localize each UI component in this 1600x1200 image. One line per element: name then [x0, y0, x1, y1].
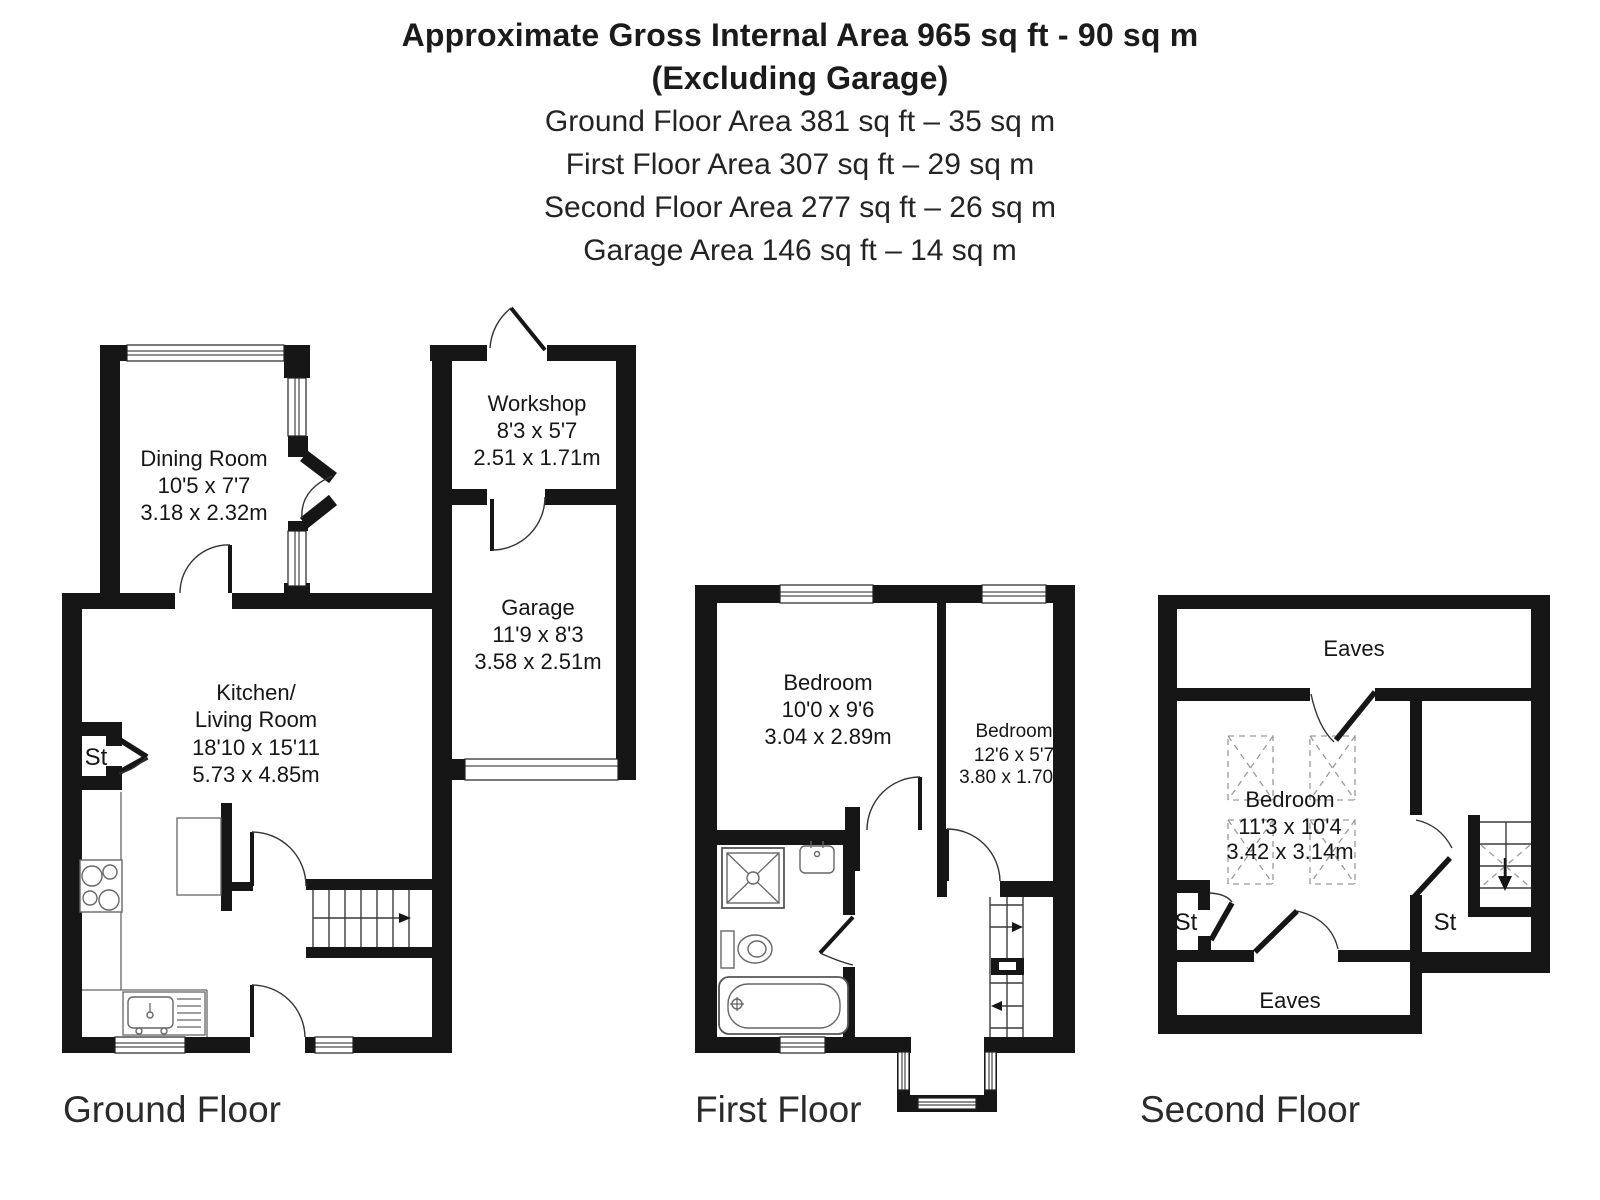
room-label-bedroom1: Bedroom — [783, 670, 872, 695]
room-dims-ft-dining: 10'5 x 7'7 — [158, 473, 251, 498]
floorplan-page: Approximate Gross Internal Area 965 sq f… — [0, 0, 1600, 1200]
eaves-top-door — [1311, 692, 1375, 742]
floor-title-ground: Ground Floor — [63, 1089, 281, 1130]
bathroom-window — [780, 1037, 825, 1053]
dining-side-window-1 — [288, 378, 306, 436]
room-dims-m-second-bedroom: 3.42 x 3.14m — [1226, 839, 1353, 864]
entrance-splay-wall-upper — [304, 456, 333, 478]
bay-window-left-pane — [898, 1052, 909, 1090]
bay-window-right-pane — [985, 1052, 996, 1090]
bedroom1-window — [780, 585, 873, 603]
room-label-workshop: Workshop — [488, 391, 587, 416]
back-door — [252, 985, 305, 1037]
room-dims-m-bedroom1: 3.04 x 2.89m — [764, 724, 891, 749]
stair-down-arrow — [991, 1001, 1002, 1011]
floor-title-second: Second Floor — [1140, 1089, 1360, 1130]
kitchen-sink-icon — [123, 992, 205, 1035]
room-dims-ft-kitchen: 18'10 x 15'11 — [192, 735, 320, 760]
room-dims-m-garage: 3.58 x 2.51m — [474, 649, 601, 674]
ground-floor-plan: Dining Room 10'5 x 7'7 3.18 x 2.32m Work… — [62, 308, 636, 1130]
room-dims-ft-garage: 11'9 x 8'3 — [492, 622, 583, 647]
room-label-store-left: St — [1175, 909, 1198, 936]
room-label-eaves-bottom: Eaves — [1259, 988, 1320, 1013]
room-dims-m-dining: 3.18 x 2.32m — [140, 500, 267, 525]
room-dims-ft-bedroom1: 10'0 x 9'6 — [782, 697, 875, 722]
bedroom1-door — [867, 777, 920, 830]
stair-down-arrow — [1498, 876, 1512, 891]
room-dims-m-workshop: 2.51 x 1.71m — [473, 445, 600, 470]
dining-side-window-2 — [288, 531, 306, 586]
second-bedroom-door — [1414, 820, 1452, 897]
eaves-bottom-door — [1255, 911, 1338, 952]
bay-opening — [911, 1037, 984, 1053]
room-dims-m-kitchen: 5.73 x 4.85m — [192, 762, 319, 787]
bathtub-icon — [719, 977, 848, 1034]
floor-title-first: First Floor — [695, 1089, 862, 1130]
room-dims-ft-bedroom2: 12'6 x 5'7 — [974, 745, 1054, 766]
bathroom-door — [820, 917, 853, 965]
dining-kitchen-door — [180, 545, 230, 593]
second-store-left-door — [1210, 893, 1232, 940]
room-label-dining: Dining Room — [140, 446, 267, 471]
ground-store-door — [119, 740, 147, 773]
workshop-external-door — [490, 308, 545, 350]
toilet-icon — [721, 931, 772, 968]
back-door-gap — [250, 1037, 305, 1053]
room-dims-ft-workshop: 8'3 x 5'7 — [497, 418, 578, 443]
room-label-ground-store: St — [85, 744, 108, 771]
kitchen-bottom-window-2 — [315, 1037, 353, 1053]
second-floor-plan: Eaves Bedroom 11'3 x 10'4 3.42 x 3.14m S… — [1140, 595, 1550, 1130]
room-label-store-right: St — [1434, 909, 1457, 936]
floor-plan-canvas: Dining Room 10'5 x 7'7 3.18 x 2.32m Work… — [0, 0, 1600, 1200]
bay-window-front-pane — [918, 1098, 976, 1109]
sink-icon — [800, 841, 834, 873]
hob-icon — [80, 860, 122, 912]
first-floor-plan: Bedroom 10'0 x 9'6 3.04 x 2.89m Bedroom … — [695, 585, 1075, 1130]
bedroom2-window — [982, 585, 1046, 603]
dining-top-window — [127, 345, 284, 361]
shower-icon — [722, 848, 784, 908]
room-dims-m-bedroom2: 3.80 x 1.70m — [959, 767, 1069, 788]
room-dims-ft-second-bedroom: 11'3 x 10'4 — [1238, 814, 1341, 839]
room-label-bedroom2: Bedroom — [975, 721, 1052, 742]
workshop-garage-door — [492, 497, 545, 551]
room-label-kitchen-1: Kitchen/ — [216, 680, 296, 705]
garage-door-opening — [465, 759, 618, 780]
kitchen-island — [177, 818, 221, 895]
ground-stairs — [313, 890, 411, 947]
second-stairs — [1480, 822, 1531, 891]
room-label-second-bedroom: Bedroom — [1245, 787, 1334, 812]
entrance-splay-wall-lower — [304, 500, 333, 523]
hall-door — [252, 832, 306, 886]
kitchen-bottom-window-1 — [115, 1037, 185, 1053]
first-stairs — [990, 897, 1024, 1037]
room-label-garage: Garage — [501, 595, 574, 620]
room-label-eaves-top: Eaves — [1323, 636, 1384, 661]
bedroom2-door — [947, 829, 1000, 881]
room-label-kitchen-2: Living Room — [195, 707, 317, 732]
stair-up-arrow — [1012, 922, 1023, 932]
